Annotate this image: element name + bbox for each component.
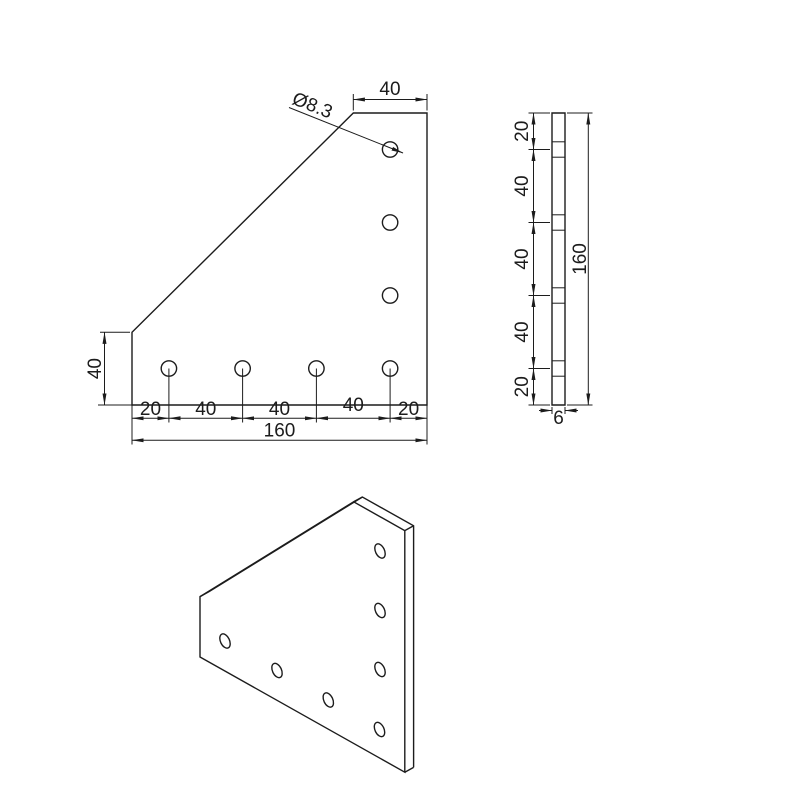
- front-chain-label: 20: [398, 399, 419, 420]
- front-dim-left-label: 40: [85, 358, 106, 379]
- hole: [373, 602, 388, 620]
- side-dim-thickness-label: 6: [553, 408, 564, 429]
- front-view: 40 Ø8.3 40 20 40: [85, 79, 427, 445]
- hole: [321, 691, 336, 709]
- iso-front-face: [200, 502, 405, 772]
- technical-drawing-canvas: 40 Ø8.3 40 20 40: [0, 0, 800, 800]
- hole: [373, 542, 388, 560]
- hole: [382, 215, 397, 230]
- iso-view: [200, 497, 414, 772]
- side-dim-chain: 20 40 40 40 20: [512, 113, 550, 405]
- front-chain-label: 40: [343, 395, 364, 416]
- front-holes: [161, 142, 398, 376]
- front-dim-total: 160: [132, 421, 427, 442]
- hole: [382, 288, 397, 303]
- iso-holes: [218, 542, 388, 738]
- hole: [218, 632, 233, 650]
- front-dim-left: 40: [85, 332, 132, 405]
- iso-edge-connector: [405, 767, 414, 772]
- side-view: 20 40 40 40 20 160 6: [512, 113, 593, 429]
- hole: [372, 721, 387, 739]
- side-dim-thickness: 6: [539, 407, 578, 429]
- front-dim-top-label: 40: [379, 79, 400, 100]
- side-hole-lines: [552, 142, 565, 376]
- side-dim-total: 160: [567, 113, 593, 405]
- side-chain-label: 40: [512, 248, 533, 269]
- front-chain-label: 20: [140, 399, 161, 420]
- front-plate-outline: [132, 113, 427, 405]
- front-dim-top: 40: [353, 79, 427, 111]
- side-chain-label: 40: [512, 175, 533, 196]
- iso-edge-connector: [405, 526, 414, 531]
- front-chain-label: 40: [269, 399, 290, 420]
- side-dim-total-label: 160: [570, 243, 591, 275]
- side-chain-label: 20: [512, 376, 533, 397]
- hole: [373, 661, 388, 679]
- iso-edge-connector: [200, 592, 209, 597]
- front-chain-label: 40: [195, 399, 216, 420]
- iso-edge-connector: [354, 497, 363, 502]
- side-chain-label: 20: [512, 121, 533, 142]
- hole: [270, 662, 285, 680]
- front-dim-total-label: 160: [264, 421, 296, 442]
- hole-diameter-label: Ø8.3: [289, 89, 335, 124]
- side-chain-label: 40: [512, 321, 533, 342]
